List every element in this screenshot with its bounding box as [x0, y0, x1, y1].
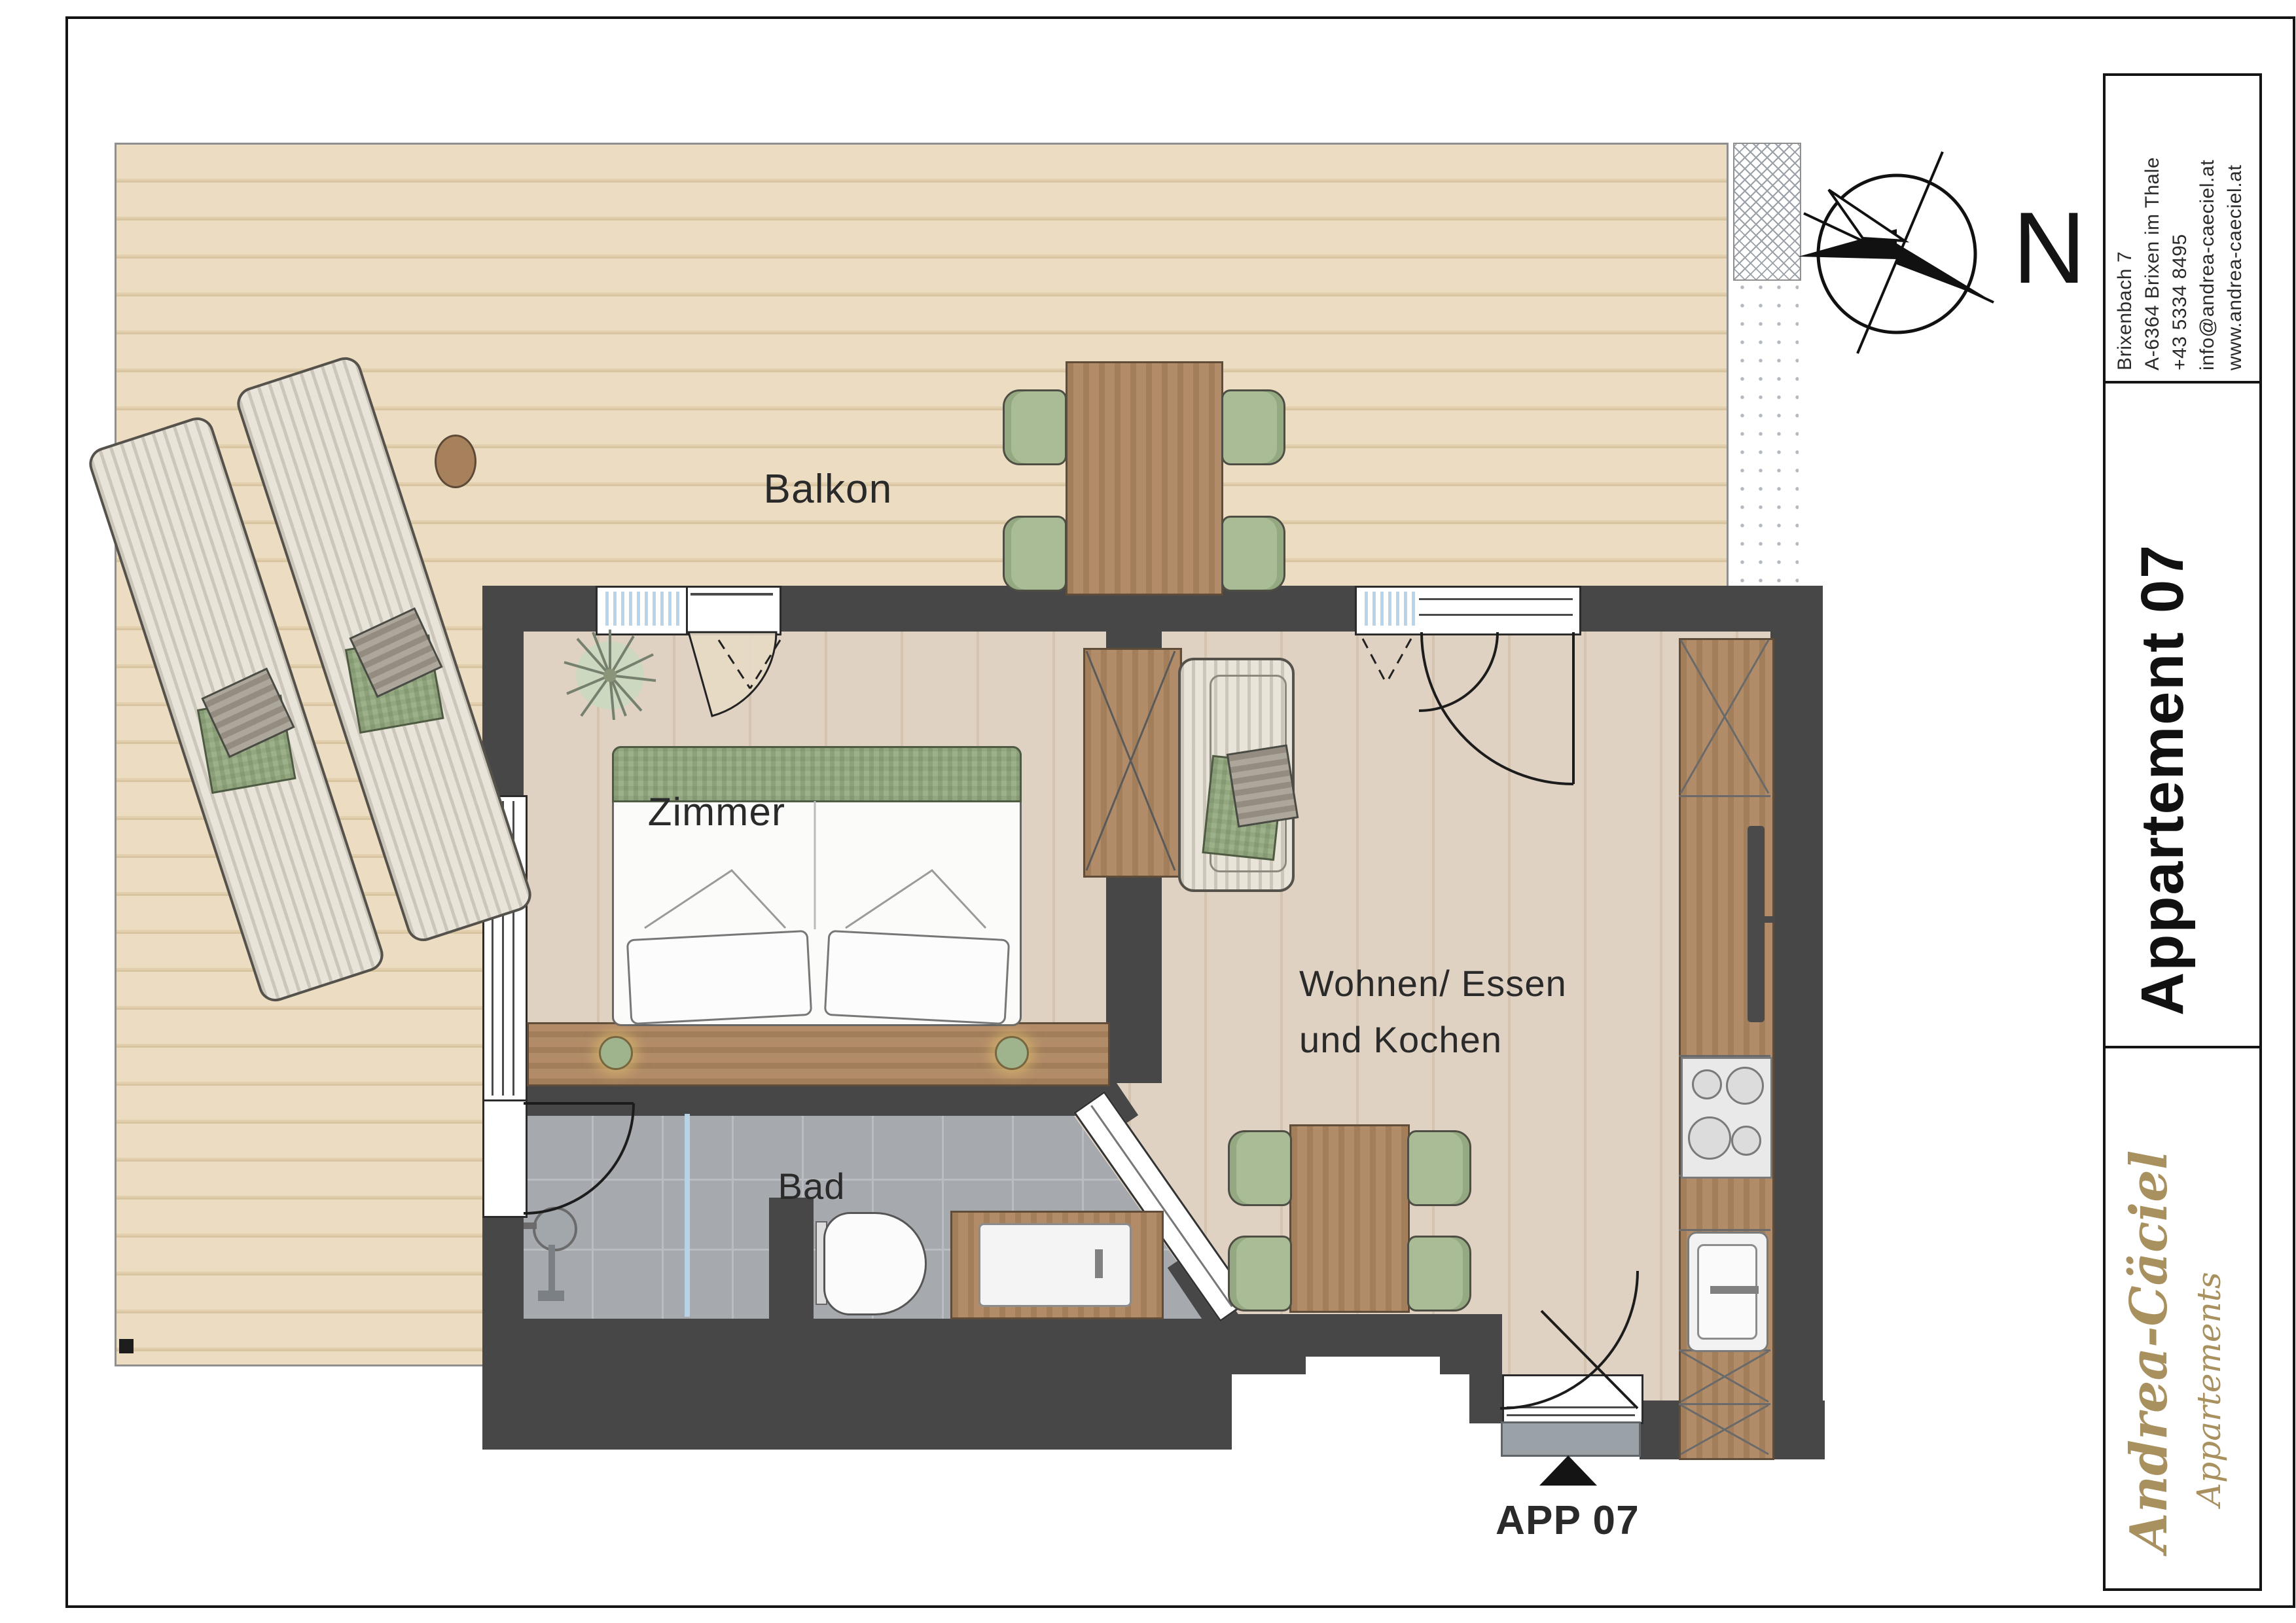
door-swing — [1422, 632, 1573, 784]
window-opening-mark — [1363, 639, 1411, 683]
door-swing — [1419, 632, 1498, 711]
apartment-title: Appartement 07 — [2128, 544, 2197, 1016]
north-compass-icon — [1799, 152, 1994, 353]
entrance-arrow-icon — [1539, 1455, 1597, 1486]
floorplan-page: { "rooms": { "balcony": "Balkon", "bedro… — [0, 0, 2296, 1623]
cabinet-x — [1681, 640, 1768, 793]
entrance-label: APP 07 — [1486, 1497, 1649, 1544]
door-swing — [524, 1103, 634, 1213]
contact-line: info@andrea-caeciel.at — [2197, 160, 2219, 370]
contact-line: +43 5334 8495 — [2169, 234, 2191, 370]
duvet-fold — [846, 870, 986, 928]
room-label-living-2: und Kochen — [1299, 1018, 1502, 1061]
room-label-bathroom: Bad — [746, 1165, 877, 1207]
cabinet-x — [1086, 651, 1175, 870]
room-label-living-1: Wohnen/ Essen — [1299, 962, 1567, 1005]
compass-north-label: N — [2013, 190, 2088, 306]
door-swing — [689, 632, 776, 716]
cabinet-x — [1681, 1351, 1768, 1402]
contact-line: A-6364 Brixen im Thale — [2142, 157, 2164, 370]
door-leaf — [1541, 1311, 1638, 1408]
contact-line: Brixenbach 7 — [2114, 251, 2136, 370]
contact-line: www.andrea-caeciel.at — [2224, 165, 2246, 370]
room-label-balcony: Balkon — [707, 466, 949, 512]
brand-name: Andrea-Cäciel — [2119, 1150, 2179, 1552]
duvet-fold — [645, 870, 785, 928]
brand-subtitle: Appartements — [2190, 1272, 2228, 1507]
room-label-bedroom: Zimmer — [609, 789, 825, 834]
cabinet-x — [1681, 1405, 1768, 1454]
plant-icon — [564, 630, 656, 720]
plan-symbols-overlay — [0, 0, 2296, 1623]
